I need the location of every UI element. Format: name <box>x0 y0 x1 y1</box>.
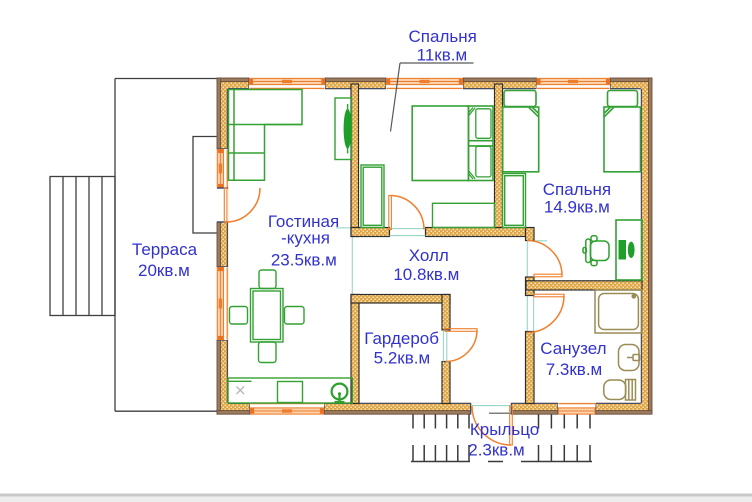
svg-text:-кухня: -кухня <box>281 229 330 248</box>
svg-text:Санузел: Санузел <box>540 339 606 358</box>
svg-text:23.5кв.м: 23.5кв.м <box>271 251 337 270</box>
svg-text:Гардероб: Гардероб <box>364 329 439 348</box>
svg-text:14.9кв.м: 14.9кв.м <box>544 198 610 217</box>
svg-text:7.3кв.м: 7.3кв.м <box>546 360 603 379</box>
svg-text:Холл: Холл <box>409 246 449 265</box>
svg-text:Спальня: Спальня <box>543 180 611 199</box>
svg-text:5.2кв.м: 5.2кв.м <box>374 349 431 368</box>
svg-text:11кв.м: 11кв.м <box>417 46 468 65</box>
svg-text:2.3кв.м: 2.3кв.м <box>468 440 525 459</box>
svg-text:Крыльцо: Крыльцо <box>470 420 539 439</box>
svg-text:20кв.м: 20кв.м <box>138 261 190 280</box>
svg-text:Спальня: Спальня <box>409 27 477 46</box>
svg-text:Терраса: Терраса <box>132 240 198 259</box>
svg-text:10.8кв.м: 10.8кв.м <box>393 265 459 284</box>
